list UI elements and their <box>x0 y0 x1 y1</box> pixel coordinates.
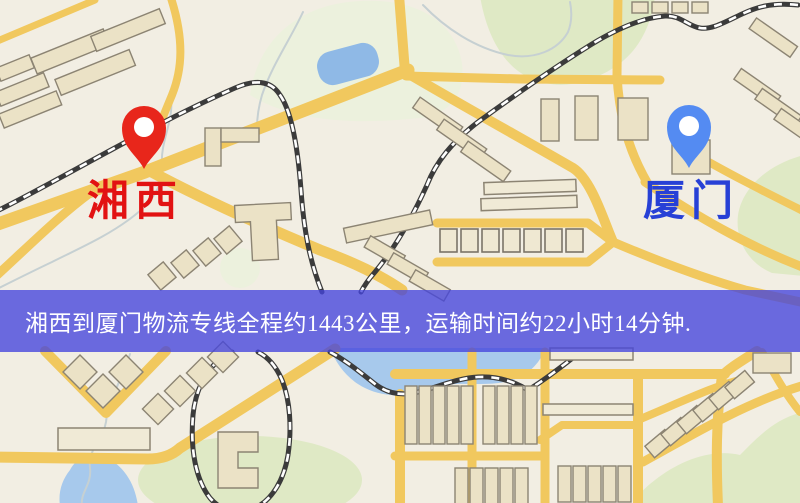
logistics-route-map: 湘西 厦门 湘西到厦门物流专线全程约1443公里，运输时间约22小时14分钟. <box>0 0 800 503</box>
route-info-text: 湘西到厦门物流专线全程约1443公里，运输时间约22小时14分钟. <box>25 304 691 338</box>
origin-city-label: 湘西 <box>87 181 183 223</box>
route-info-banner: 湘西到厦门物流专线全程约1443公里，运输时间约22小时14分钟. <box>0 290 800 352</box>
map-canvas <box>0 0 800 503</box>
destination-city-label: 厦门 <box>643 181 739 223</box>
